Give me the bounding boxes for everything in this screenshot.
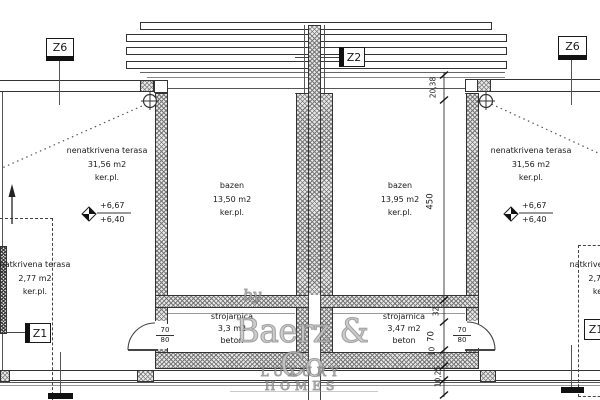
room-area: 31,56 m2 — [512, 160, 550, 169]
marker-z6-right: Z6 — [558, 36, 587, 60]
marker-z6-right-label: Z6 — [565, 40, 580, 53]
room-area: 13,50 m2 — [213, 195, 251, 204]
dim-bottom-stack: 10,25 — [434, 359, 443, 395]
marker-z2: Z2 — [339, 47, 365, 67]
elevation-upper-left: +6,67 — [100, 201, 125, 210]
door-width: 70 — [453, 326, 471, 336]
room-name: nenatkrivena terasa — [67, 146, 148, 155]
survey-point-left — [141, 92, 159, 110]
room-area: 13,95 m2 — [381, 195, 419, 204]
room-finish: ker.pl. — [95, 173, 119, 182]
door-left — [128, 323, 158, 350]
room-name: natkrivena terasa — [0, 260, 70, 269]
room-name: nenatkrivena terasa — [491, 146, 572, 155]
room-label-covered-left: natkrivena terasa 2,77 m2 ker.pl. — [0, 258, 82, 299]
dimension-chain — [440, 72, 448, 399]
survey-point-right — [477, 92, 495, 110]
watermark-underline — [230, 391, 378, 392]
north-arrow — [9, 184, 16, 224]
dim-pool-length: 450 — [427, 184, 436, 220]
room-area: 31,56 m2 — [88, 160, 126, 169]
door-width: 70 — [156, 326, 174, 336]
elevation-upper-right: +6,67 — [522, 201, 547, 210]
dim-top-stack: 20,38 — [429, 70, 438, 106]
elevation-lower-left: +6,40 — [100, 215, 125, 224]
elevation-lower-right: +6,40 — [522, 215, 547, 224]
room-finish: ker.pl. — [388, 208, 412, 217]
marker-z2-label: Z2 — [347, 51, 362, 64]
room-name: strojarnica — [383, 312, 425, 321]
marker-z1-left-label: Z1 — [33, 327, 48, 340]
marker-z1-left: Z1 — [25, 323, 51, 343]
room-name: bazen — [220, 181, 244, 190]
section-mark-right — [561, 387, 584, 393]
room-label-terrace-left: nenatkrivena terasa 31,56 m2 ker.pl. — [57, 144, 157, 185]
room-finish: ker.pl. — [220, 208, 244, 217]
room-finish: ker.pl. — [23, 287, 47, 296]
watermark-tagline: LUXURY HOMES — [227, 365, 377, 393]
room-area: 2,77 m2 — [588, 274, 600, 283]
room-label-pool-left: bazen 13,50 m2 ker.pl. — [182, 179, 282, 220]
door-height: 80 — [458, 336, 467, 344]
marker-z6-left: Z6 — [46, 38, 74, 61]
room-finish: ker.pl. — [593, 287, 600, 296]
room-label-covered-right: natkrivena terasa 2,77 m2 ker.pl. — [557, 258, 600, 299]
door-size-left: 70 80 — [156, 326, 174, 344]
section-line-left — [60, 352, 61, 393]
door-size-right: 70 80 — [453, 326, 471, 344]
marker-z1-right-label: Z1 — [589, 323, 600, 336]
door-height: 80 — [161, 336, 170, 344]
room-name: natkrivena terasa — [570, 260, 600, 269]
room-label-terrace-right: nenatkrivena terasa 31,56 m2 ker.pl. — [481, 144, 581, 185]
watermark-by: by — [243, 286, 261, 304]
room-name: bazen — [388, 181, 412, 190]
room-finish: beton — [392, 336, 415, 345]
room-finish: ker.pl. — [519, 173, 543, 182]
floor-plan: Z6 Z6 Z2 Z1 Z1 — [0, 0, 600, 400]
section-mark-left — [48, 393, 73, 399]
room-area: 3,47 m2 — [387, 324, 420, 333]
marker-z1-right: Z1 — [584, 319, 600, 340]
marker-z6-left-label: Z6 — [53, 41, 68, 54]
room-area: 2,77 m2 — [18, 274, 51, 283]
section-line-right — [571, 345, 572, 387]
